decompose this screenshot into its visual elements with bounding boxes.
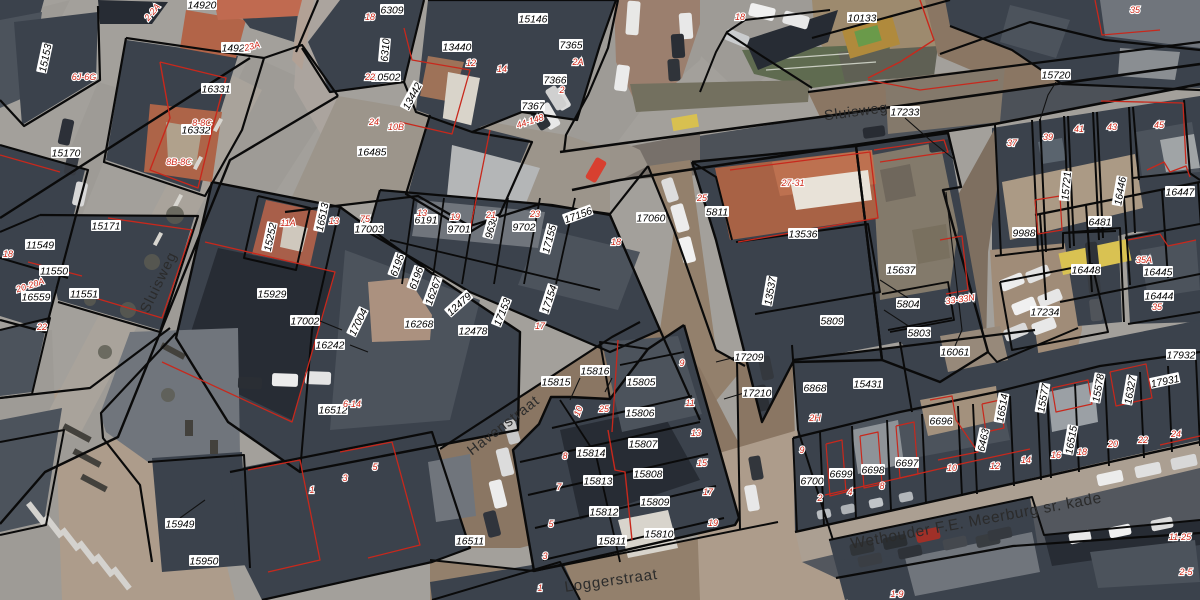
svg-text:6868: 6868: [803, 384, 826, 395]
svg-text:15809: 15809: [641, 498, 670, 509]
svg-text:2H: 2H: [808, 413, 821, 423]
svg-text:25: 25: [696, 193, 708, 203]
svg-text:15171: 15171: [92, 222, 121, 233]
svg-text:10B: 10B: [388, 122, 404, 132]
svg-text:16: 16: [1051, 450, 1061, 460]
svg-text:17234: 17234: [1031, 308, 1060, 319]
svg-text:22: 22: [36, 322, 47, 332]
svg-text:35: 35: [1130, 5, 1141, 15]
svg-text:16445: 16445: [1144, 268, 1173, 279]
svg-text:6J-6G: 6J-6G: [72, 72, 97, 82]
svg-text:8: 8: [879, 481, 884, 491]
svg-text:16061: 16061: [941, 348, 970, 359]
svg-text:15811: 15811: [598, 537, 626, 548]
svg-text:16268: 16268: [405, 320, 434, 331]
svg-text:17002: 17002: [291, 317, 320, 328]
svg-text:17233: 17233: [891, 108, 920, 119]
svg-text:17060: 17060: [637, 214, 666, 225]
svg-text:14: 14: [1021, 455, 1031, 465]
svg-text:6696: 6696: [929, 417, 952, 428]
svg-text:11549: 11549: [26, 241, 54, 252]
svg-text:14920: 14920: [188, 1, 217, 12]
svg-text:10: 10: [947, 463, 957, 473]
svg-text:16559: 16559: [22, 293, 51, 304]
svg-text:6698: 6698: [861, 466, 884, 477]
svg-text:8-8C: 8-8C: [192, 118, 212, 128]
svg-text:15813: 15813: [584, 477, 613, 488]
svg-text:5803: 5803: [907, 329, 930, 340]
svg-text:11A: 11A: [280, 218, 295, 228]
svg-text:27-31: 27-31: [780, 178, 804, 188]
svg-text:16242: 16242: [316, 341, 345, 352]
svg-text:6697: 6697: [895, 459, 919, 470]
svg-text:7367: 7367: [521, 102, 545, 113]
svg-text:45: 45: [1154, 120, 1165, 130]
svg-text:9702: 9702: [512, 223, 535, 234]
svg-text:13440: 13440: [443, 43, 472, 54]
svg-text:1: 1: [309, 485, 314, 495]
svg-text:12: 12: [466, 58, 476, 68]
svg-text:13: 13: [329, 216, 339, 226]
svg-text:2-5: 2-5: [1178, 567, 1193, 577]
svg-text:2: 2: [816, 493, 822, 503]
svg-text:17932: 17932: [1167, 351, 1196, 362]
svg-text:13: 13: [417, 208, 427, 218]
svg-text:16447: 16447: [1166, 188, 1196, 199]
svg-text:6699: 6699: [829, 470, 852, 481]
svg-text:15949: 15949: [166, 520, 195, 531]
svg-text:3: 3: [342, 473, 347, 483]
svg-text:15816: 15816: [581, 367, 610, 378]
svg-text:8B-8C: 8B-8C: [166, 157, 192, 167]
svg-text:17: 17: [535, 321, 546, 331]
svg-text:1-9: 1-9: [890, 589, 903, 599]
svg-text:13: 13: [691, 428, 701, 438]
svg-text:16485: 16485: [358, 148, 387, 159]
svg-text:6-14: 6-14: [343, 399, 361, 409]
svg-text:6309: 6309: [380, 6, 403, 17]
svg-text:21: 21: [485, 210, 496, 220]
svg-text:7365: 7365: [559, 41, 582, 52]
svg-text:41: 41: [1074, 124, 1084, 134]
svg-text:18: 18: [735, 12, 745, 22]
svg-text:11: 11: [685, 398, 694, 408]
svg-text:5804: 5804: [896, 300, 919, 311]
svg-text:1: 1: [537, 583, 542, 593]
svg-text:23: 23: [529, 209, 540, 219]
svg-text:15950: 15950: [190, 557, 219, 568]
svg-text:15814: 15814: [577, 449, 606, 460]
svg-text:15815: 15815: [542, 378, 571, 389]
svg-text:13536: 13536: [789, 230, 818, 241]
svg-text:22: 22: [364, 72, 375, 82]
svg-text:43: 43: [1107, 122, 1117, 132]
svg-text:17209: 17209: [735, 353, 764, 364]
svg-text:15431: 15431: [854, 380, 883, 391]
svg-text:19: 19: [450, 212, 460, 222]
svg-text:75: 75: [360, 214, 371, 224]
svg-text:15637: 15637: [887, 266, 917, 277]
svg-text:22: 22: [1137, 435, 1148, 445]
svg-text:2A: 2A: [571, 57, 583, 67]
svg-text:16331: 16331: [202, 85, 231, 96]
svg-text:15: 15: [697, 458, 708, 468]
svg-text:9: 9: [679, 358, 684, 368]
svg-text:16511: 16511: [456, 537, 484, 548]
svg-text:9701: 9701: [447, 225, 470, 236]
svg-text:20: 20: [1107, 439, 1118, 449]
svg-text:18: 18: [1077, 447, 1087, 457]
svg-text:15806: 15806: [626, 409, 655, 420]
svg-text:15720: 15720: [1042, 71, 1071, 82]
svg-text:15146: 15146: [519, 15, 548, 26]
svg-text:6700: 6700: [800, 477, 823, 488]
svg-text:25: 25: [598, 404, 610, 414]
svg-text:6310: 6310: [380, 38, 393, 62]
svg-text:24: 24: [368, 117, 379, 127]
svg-text:15812: 15812: [590, 508, 619, 519]
svg-text:11-25: 11-25: [1169, 532, 1192, 542]
svg-text:24: 24: [1170, 429, 1181, 439]
svg-text:10502: 10502: [372, 73, 401, 84]
svg-text:17003: 17003: [355, 225, 384, 236]
svg-text:11550: 11550: [40, 267, 68, 278]
svg-text:18: 18: [611, 237, 621, 247]
svg-text:12: 12: [990, 461, 1000, 471]
svg-text:9: 9: [799, 445, 804, 455]
svg-text:15170: 15170: [52, 149, 81, 160]
svg-text:12478: 12478: [459, 327, 488, 338]
svg-text:19: 19: [708, 518, 718, 528]
svg-text:18: 18: [3, 249, 13, 259]
svg-text:5811: 5811: [706, 208, 728, 219]
svg-text:35: 35: [1152, 302, 1163, 312]
svg-text:35A: 35A: [1136, 255, 1152, 265]
svg-text:8: 8: [562, 451, 567, 461]
svg-text:11551: 11551: [70, 290, 98, 301]
svg-text:4: 4: [847, 487, 852, 497]
svg-text:9988: 9988: [1012, 229, 1035, 240]
svg-text:15807: 15807: [629, 440, 659, 451]
svg-text:16444: 16444: [1145, 292, 1174, 303]
svg-text:17: 17: [703, 487, 714, 497]
svg-text:3: 3: [542, 551, 547, 561]
svg-text:10133: 10133: [848, 14, 877, 25]
svg-text:2: 2: [558, 85, 564, 95]
svg-text:15929: 15929: [258, 290, 287, 301]
svg-text:15810: 15810: [645, 530, 674, 541]
svg-text:17210: 17210: [743, 389, 772, 400]
svg-text:5809: 5809: [820, 317, 843, 328]
svg-text:6481: 6481: [1088, 218, 1111, 229]
svg-text:39: 39: [1043, 132, 1053, 142]
svg-text:15805: 15805: [627, 378, 656, 389]
svg-text:37: 37: [1007, 138, 1018, 148]
svg-text:14: 14: [497, 64, 507, 74]
svg-text:18: 18: [365, 12, 375, 22]
svg-text:16448: 16448: [1072, 266, 1101, 277]
svg-text:15808: 15808: [634, 470, 663, 481]
